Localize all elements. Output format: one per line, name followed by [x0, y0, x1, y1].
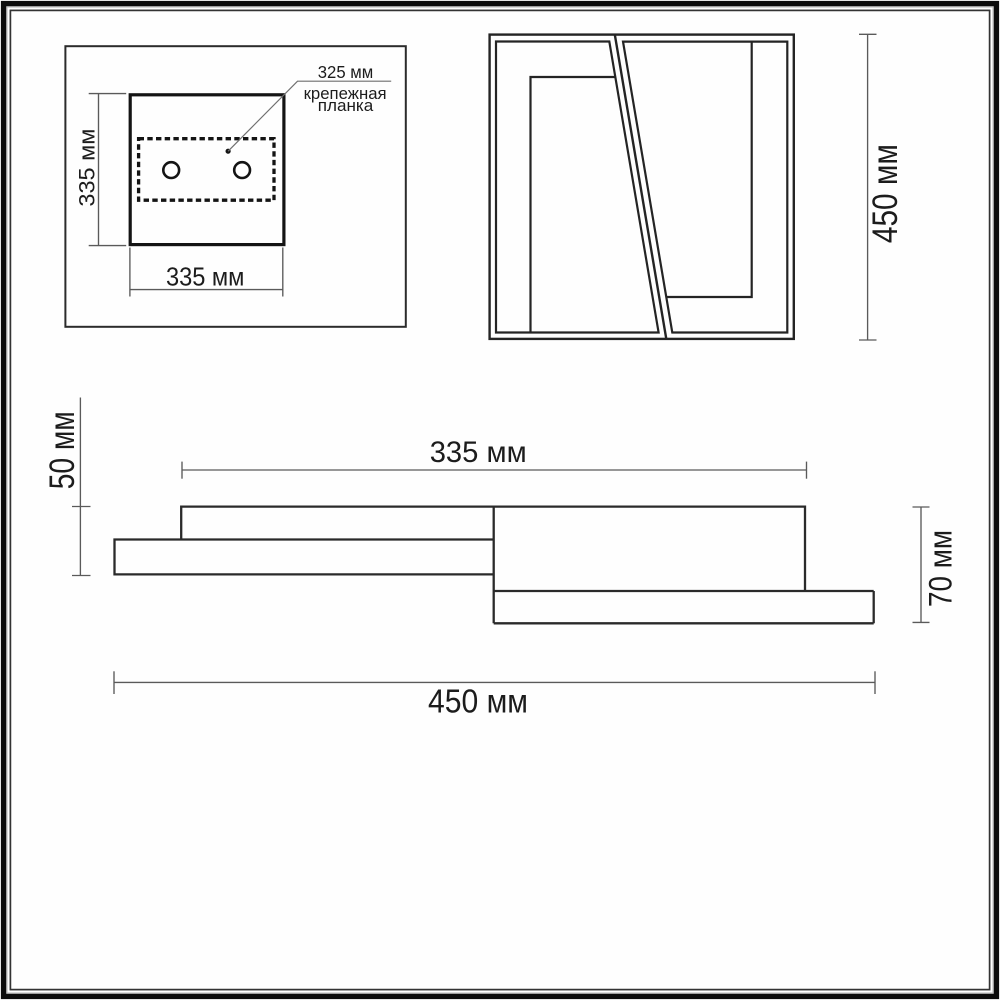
svg-text:325 мм: 325 мм	[318, 62, 374, 82]
svg-text:335 мм: 335 мм	[430, 436, 527, 469]
svg-text:450 мм: 450 мм	[865, 144, 905, 243]
svg-text:50 мм: 50 мм	[43, 411, 82, 489]
svg-text:450 мм: 450 мм	[428, 682, 528, 720]
svg-text:335 мм: 335 мм	[166, 262, 245, 292]
svg-text:планка: планка	[318, 96, 374, 115]
svg-text:335 мм: 335 мм	[75, 129, 100, 207]
svg-text:70 мм: 70 мм	[922, 530, 958, 607]
